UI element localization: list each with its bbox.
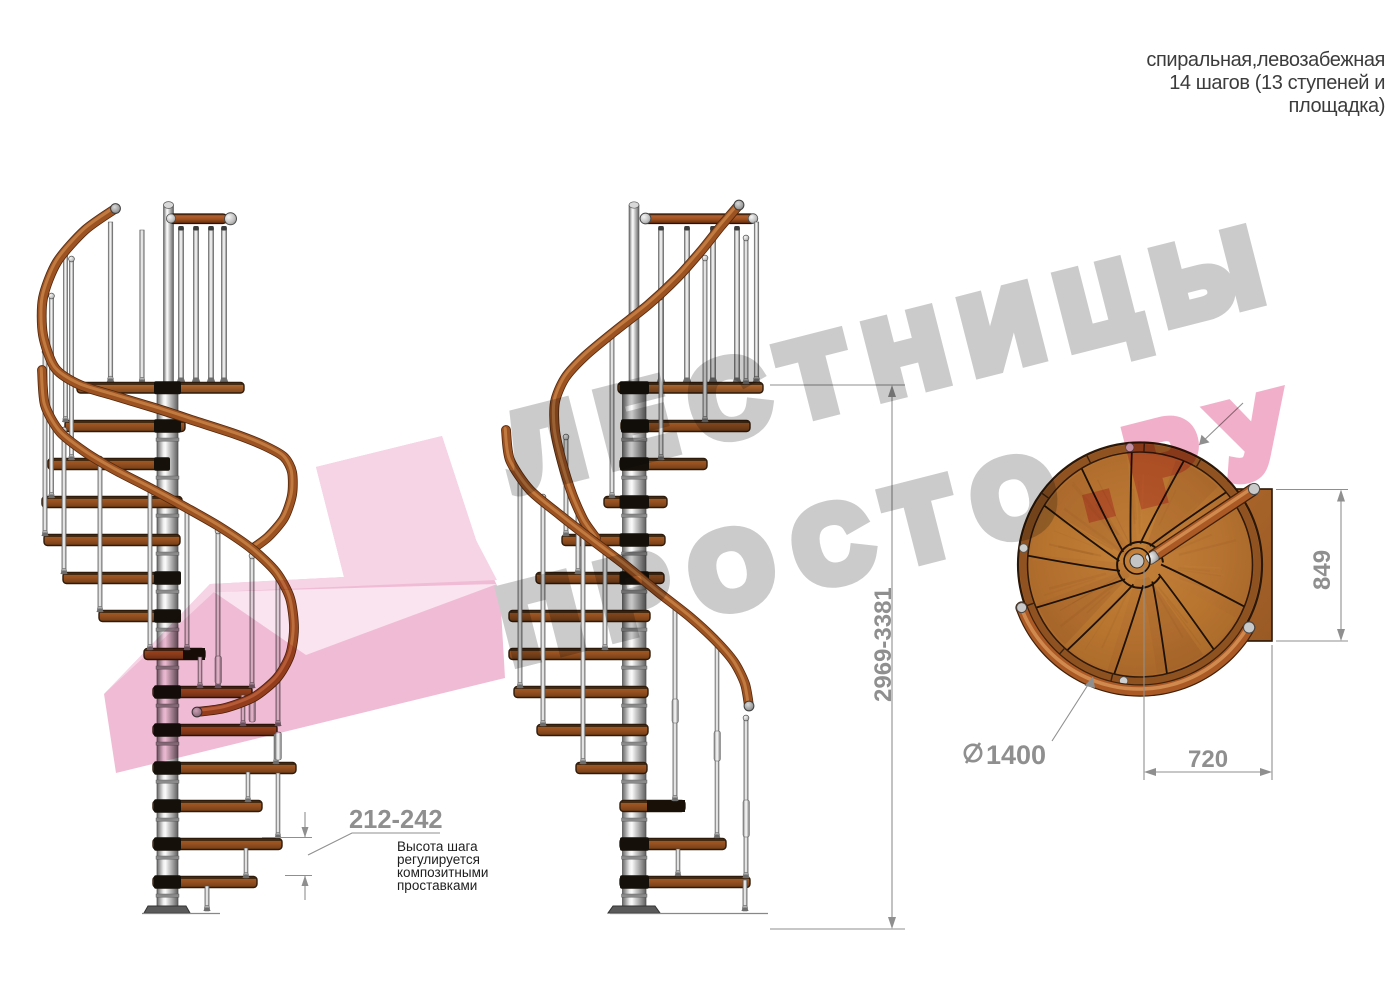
svg-text:спиральная,левозабежная: спиральная,левозабежная — [1146, 49, 1385, 71]
svg-text:проставками: проставками — [397, 878, 477, 893]
svg-text:849: 849 — [1309, 550, 1336, 590]
svg-text:212-242: 212-242 — [349, 806, 443, 834]
svg-text:2969-3381: 2969-3381 — [870, 587, 897, 702]
svg-text:площадка): площадка) — [1289, 95, 1385, 117]
svg-text:1400: 1400 — [986, 740, 1046, 770]
svg-text:720: 720 — [1188, 746, 1228, 773]
svg-text:14 шагов (13 ступеней и: 14 шагов (13 ступеней и — [1169, 72, 1385, 94]
